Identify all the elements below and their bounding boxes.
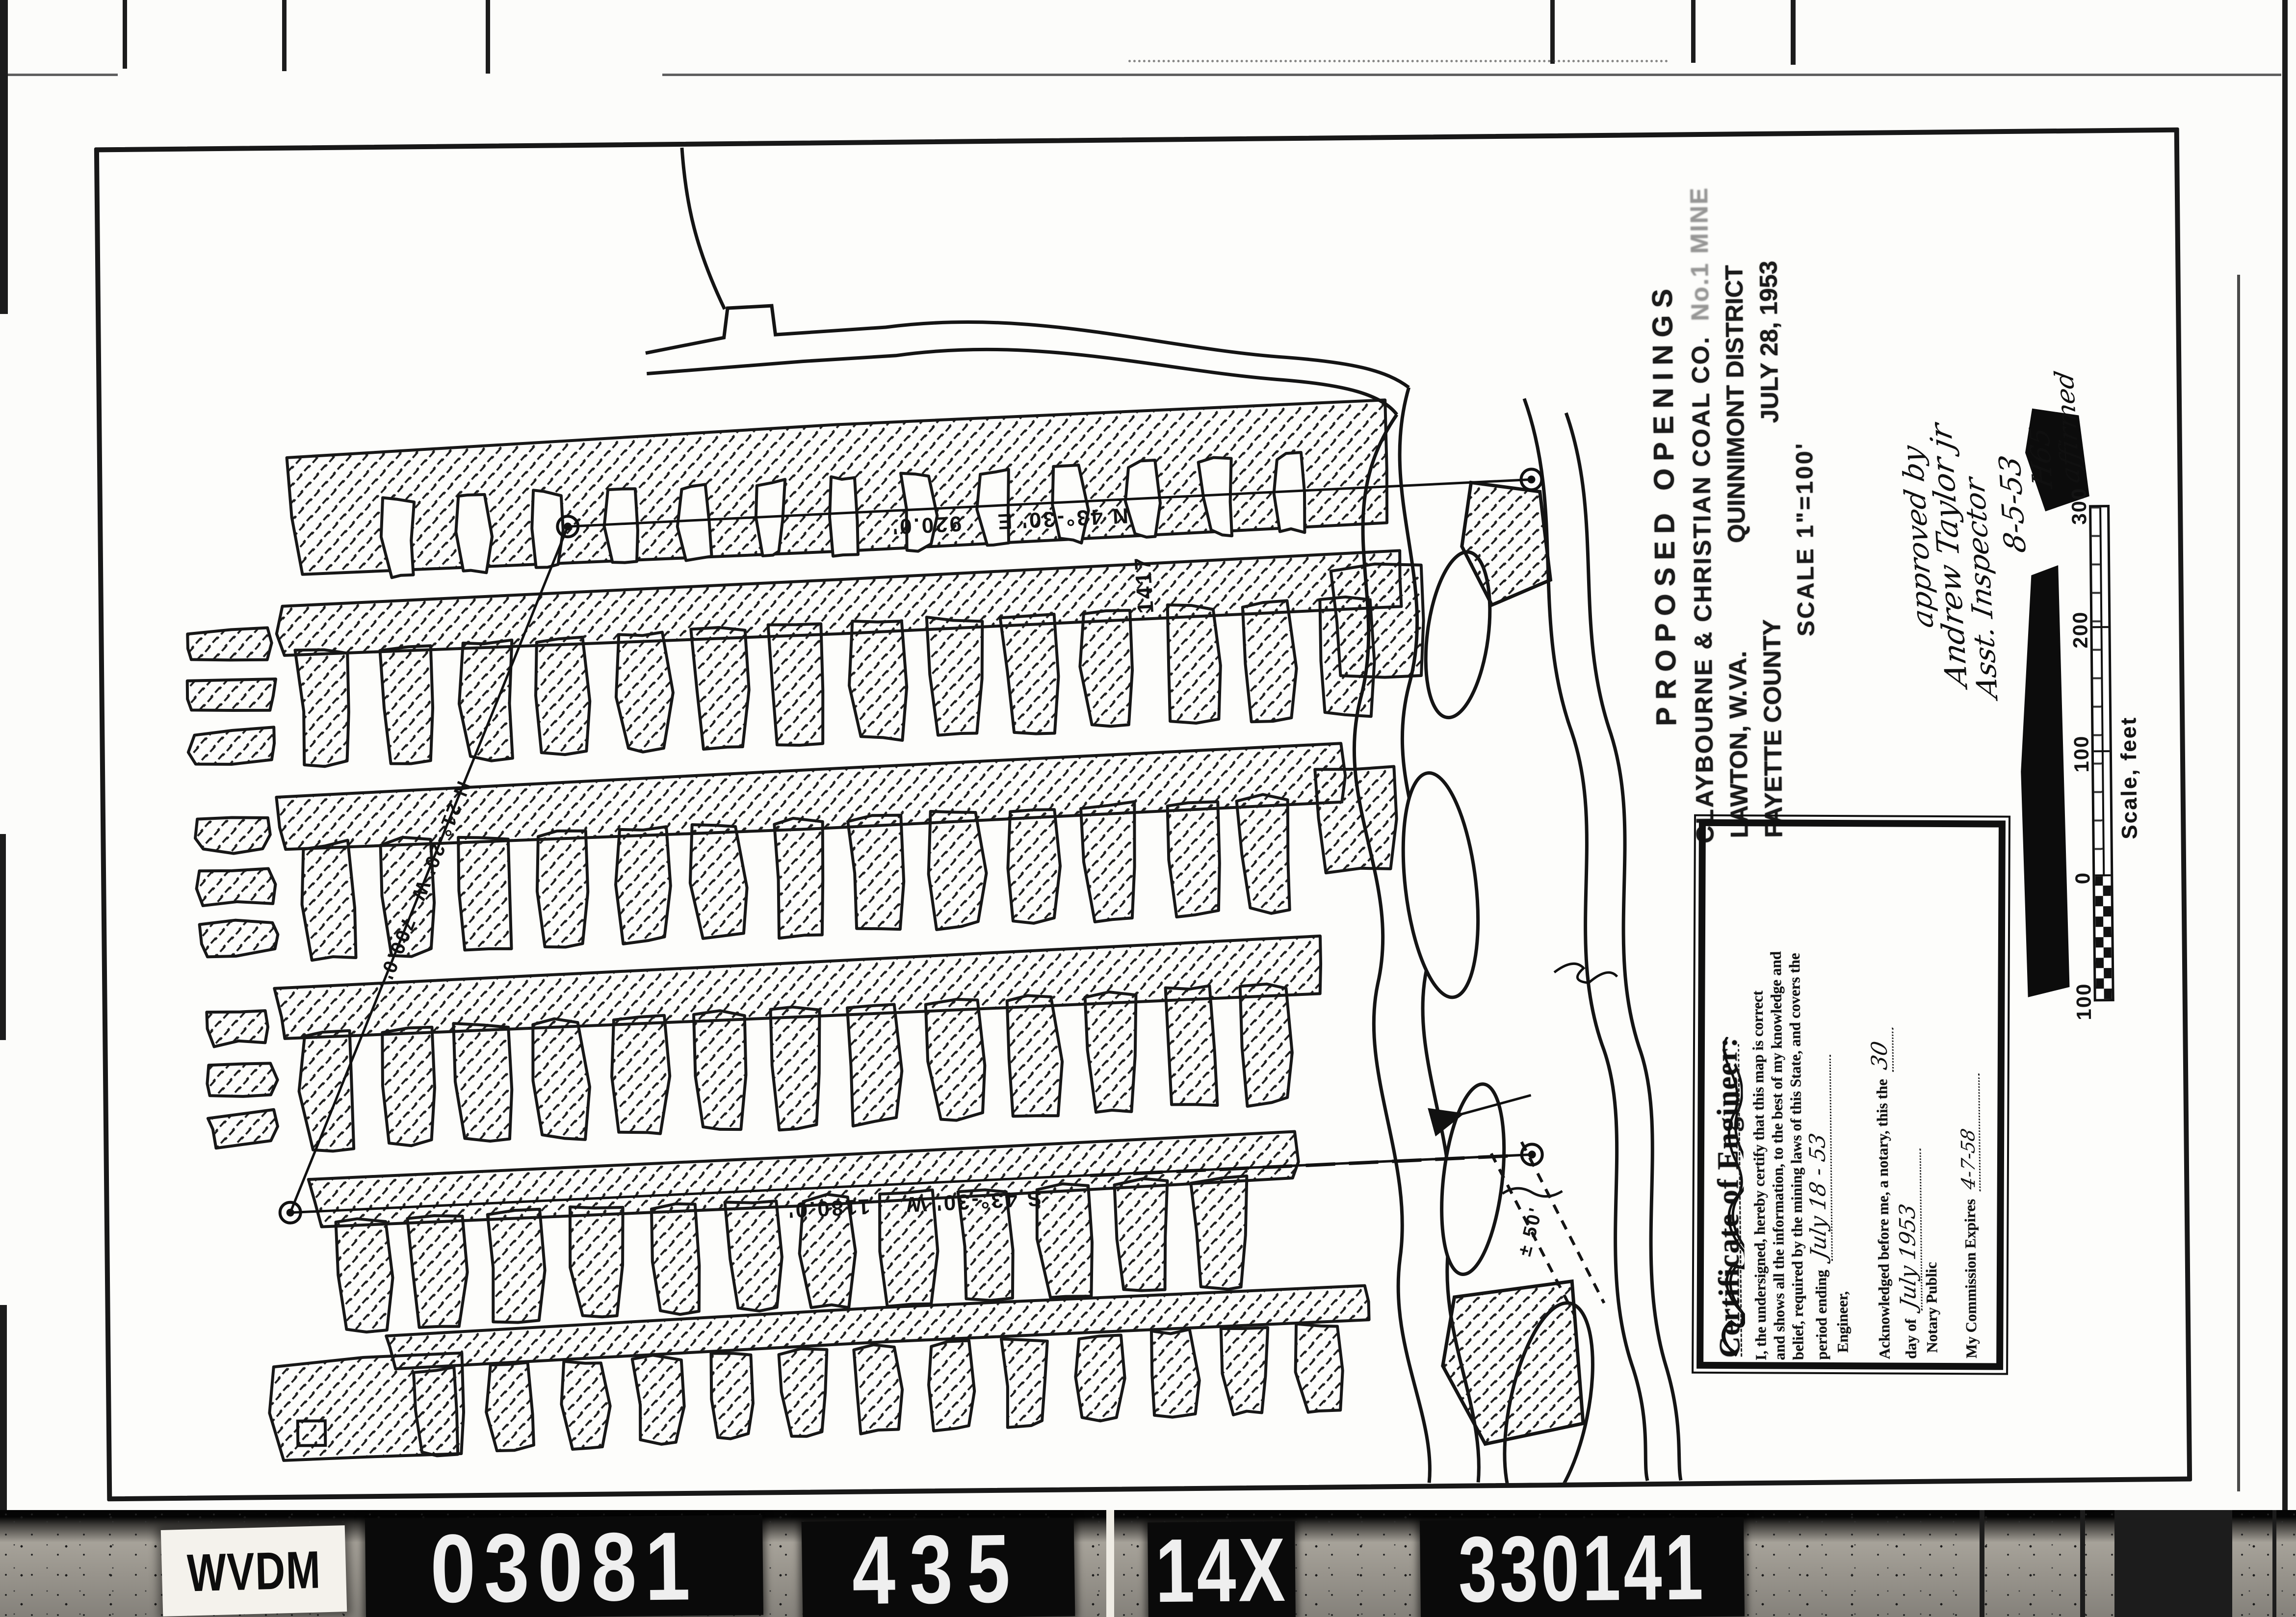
pillar (1239, 983, 1295, 1107)
film-code-text: 435 (852, 1512, 1025, 1617)
pillar (1006, 994, 1065, 1118)
pillar (487, 1209, 547, 1324)
strip-line (2272, 1510, 2276, 1617)
notary-signature-row: Notary Public (1918, 829, 1959, 1359)
expires-value: 4-7-58 (1957, 1069, 1981, 1192)
pillar (207, 1009, 269, 1047)
pillar (1073, 1335, 1126, 1422)
title-block: PROPOSED OPENINGS CLAYBOURNE & CHRISTIAN… (1644, 135, 1872, 849)
tick-label: 0 (2071, 872, 2094, 885)
strip-black-block (2114, 1510, 2232, 1617)
city: LAWTON, W.VA. (1723, 651, 1754, 838)
strip-line (2080, 1510, 2085, 1617)
film-mark (1791, 0, 1796, 65)
pillar (452, 1021, 514, 1143)
pillar (1164, 602, 1223, 725)
film-code-text: 330141 (1458, 1513, 1707, 1617)
microfilm-frame: N 43°-30' E920.0' S 43°-30' W1180.0' N 2… (0, 0, 2296, 1617)
pillar (1005, 808, 1063, 924)
tick-label: 200 (2068, 611, 2092, 649)
film-edge-right (2282, 0, 2288, 1617)
certificate-of-engineer: Certificate of Engineer: I, the undersig… (1706, 828, 1995, 1361)
expires-label: My Commission Expires (1961, 1199, 1981, 1358)
pillar (847, 1004, 905, 1126)
film-edge-right-inner (2237, 275, 2240, 1491)
film-code-text: 14X (1155, 1517, 1288, 1617)
period-label: period ending (1812, 1270, 1831, 1360)
engineer-label: Engineer, (1833, 1291, 1852, 1353)
pillar (828, 475, 859, 556)
county-date-line: FAYETTE COUNTY JULY 28, 1953 (1753, 136, 1788, 837)
pillar (613, 632, 676, 753)
film-id-strip: WVDM 03081 435 14X 330141 (0, 1510, 2296, 1617)
pillar (709, 1351, 755, 1439)
pillar (692, 1010, 750, 1132)
pillar (208, 1109, 279, 1148)
pillar (530, 1017, 592, 1142)
scale-caption: Scale, feet (2114, 466, 2142, 839)
film-scratch (662, 74, 2281, 76)
film-edge-left (0, 1305, 7, 1516)
county: FAYETTE COUNTY (1757, 619, 1788, 838)
mine-workings (174, 396, 1463, 1466)
pillar (769, 1006, 826, 1130)
pillar (687, 822, 750, 939)
strip-line (1980, 1510, 1984, 1617)
pillar (632, 1354, 686, 1446)
company-line: CLAYBOURNE & CHRISTIAN COAL CO. No.1 MIN… (1684, 137, 1720, 843)
film-code-tile: 330141 (1420, 1517, 1745, 1617)
film-label-text: WVDM (186, 1539, 321, 1603)
map-scale: SCALE 1"=100' (1788, 136, 1820, 636)
ack-day: 30 (1867, 1022, 1894, 1072)
pillar (691, 626, 752, 750)
pillar (925, 998, 988, 1121)
pillar (456, 835, 514, 951)
film-mark (1550, 0, 1555, 64)
pillar (1001, 1337, 1051, 1428)
pillar (768, 622, 827, 746)
day-of-label: day of (1902, 1319, 1921, 1359)
day-of-value: July 1953 (1895, 1144, 1923, 1311)
film-code-tile: 14X (1148, 1521, 1296, 1617)
pillar (613, 827, 673, 944)
pillar (848, 814, 907, 931)
strip-divider (1106, 1510, 1114, 1617)
pillar (1293, 1322, 1345, 1413)
approval-note-word: affirmed (2051, 361, 2085, 485)
company-suffix: No.1 MINE (1685, 186, 1715, 321)
film-edge-left (0, 0, 8, 314)
pillar (336, 1217, 395, 1333)
film-code-tile: 03081 (365, 1515, 763, 1617)
pillar (295, 648, 353, 768)
pillar (927, 614, 988, 735)
ack-line: Acknowledged before me, a notary, this t… (1873, 1079, 1894, 1359)
pillar (925, 809, 989, 930)
film-scratch (1128, 60, 1668, 62)
pillar (779, 1348, 831, 1438)
pillar (1000, 614, 1062, 736)
film-mark (282, 0, 287, 71)
pillar (187, 727, 276, 766)
pillar (1236, 793, 1293, 915)
pillar (187, 627, 272, 663)
pillar (1077, 610, 1136, 728)
pillar (1191, 1176, 1252, 1291)
surface-road (644, 141, 1409, 422)
scale-bar-checker (2095, 876, 2112, 999)
period-value: July 18 - 53 (1804, 1049, 1833, 1261)
pillar (534, 830, 592, 948)
pillar (1081, 802, 1141, 922)
pillar (196, 867, 277, 908)
pillar (854, 1343, 904, 1434)
film-mark (486, 0, 490, 74)
pillar (559, 1359, 612, 1450)
pillar (567, 1204, 628, 1318)
pillar (207, 1062, 279, 1098)
location-line: LAWTON, W.VA. QUINNIMONT DISTRICT (1719, 136, 1754, 838)
pillar (773, 817, 828, 938)
map-sheet: N 43°-30' E920.0' S 43°-30' W1180.0' N 2… (94, 128, 2192, 1502)
map-title: PROPOSED OPENINGS (1644, 137, 1683, 726)
pillar (186, 677, 277, 714)
pillar (533, 637, 592, 756)
film-edge-left (0, 834, 6, 1040)
map-date: JULY 28, 1953 (1754, 261, 1784, 423)
pillar (609, 1016, 673, 1136)
pillar (1085, 991, 1142, 1114)
notary-signature (1708, 1037, 1745, 1361)
elevation-label: 1417 (1129, 555, 1158, 614)
film-code-text: 03081 (430, 1510, 699, 1617)
company-name: CLAYBOURNE & CHRISTIAN COAL CO. (1686, 336, 1720, 843)
pillar (530, 489, 565, 568)
pillar (1242, 600, 1299, 723)
scale-bar: 100 0 100 200 300 Scale, feet (2067, 467, 2140, 1002)
notary-label: Notary Public (1922, 1262, 1942, 1353)
pillar (380, 1027, 438, 1147)
tick-label: 100 (2070, 735, 2094, 773)
commission-row: My Commission Expires 4-7-58 (1955, 829, 1983, 1358)
pillar (1114, 1177, 1173, 1292)
pillar (1331, 562, 1427, 680)
pillar (846, 619, 910, 743)
film-mark (123, 0, 127, 69)
pillar (456, 640, 518, 762)
film-scratch (0, 74, 118, 76)
pillar (1034, 1182, 1095, 1299)
pillar (296, 1031, 356, 1153)
film-code-tile: 435 (802, 1518, 1075, 1617)
pillar (380, 646, 436, 765)
pillar (407, 1214, 470, 1329)
scale-bar-graphic (2089, 505, 2114, 1001)
pillar (1150, 1329, 1201, 1418)
pillar (199, 918, 279, 958)
film-label-card: WVDM (161, 1525, 347, 1617)
pillar (927, 1340, 976, 1431)
tick-label: 300 (2067, 487, 2091, 525)
engineer-signature-row: Engineer, (1829, 830, 1870, 1360)
pillar (725, 1200, 785, 1312)
pillar (299, 840, 357, 961)
tick-label: 100 (2072, 983, 2096, 1020)
film-mark (1691, 0, 1696, 63)
pillar (194, 815, 271, 855)
pillar (1166, 801, 1224, 917)
district: QUINNIMONT DISTRICT (1720, 265, 1750, 543)
pillar (1220, 1326, 1272, 1415)
pillar (1166, 986, 1218, 1108)
pillar (484, 1362, 534, 1452)
pillar (650, 1203, 702, 1316)
